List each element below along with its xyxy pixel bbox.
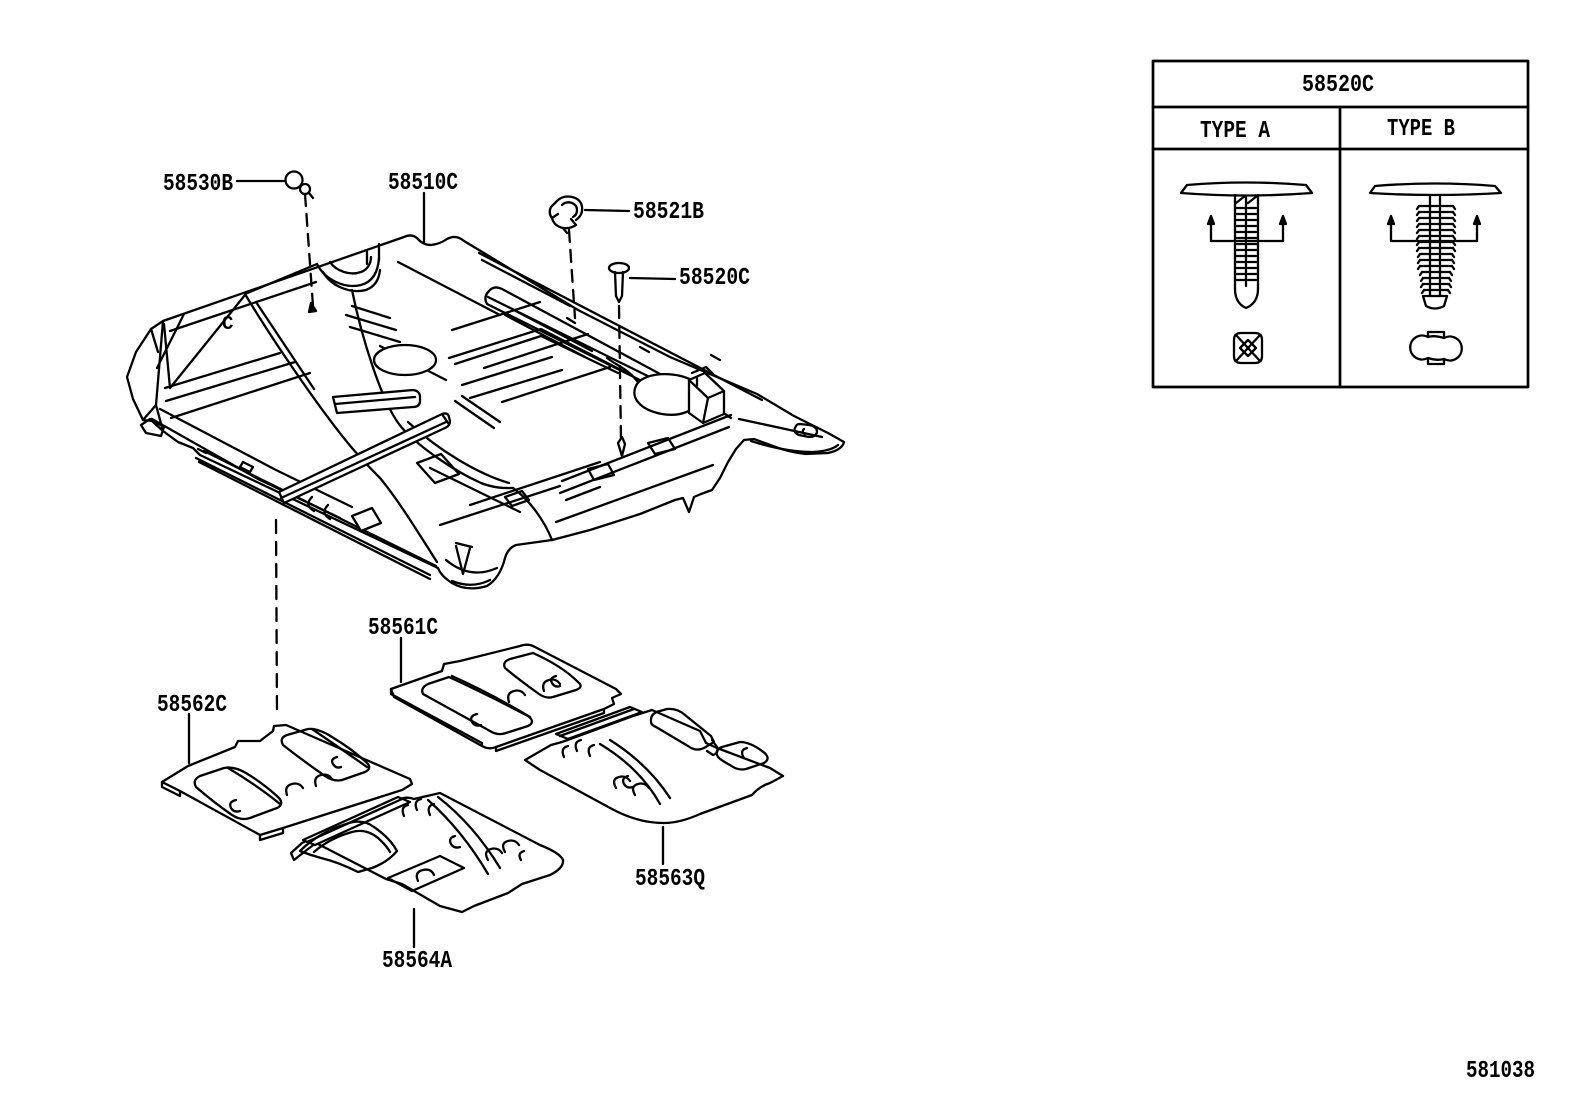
svg-text:TYPE A: TYPE A — [1200, 118, 1270, 145]
svg-text:58563Q: 58563Q — [635, 866, 705, 893]
svg-text:58561C: 58561C — [368, 615, 438, 642]
svg-text:58562C: 58562C — [157, 692, 227, 719]
svg-text:C: C — [222, 313, 233, 335]
svg-text:581038: 581038 — [1466, 1058, 1535, 1085]
svg-text:58521B: 58521B — [633, 199, 704, 226]
svg-text:58520C: 58520C — [679, 265, 750, 292]
svg-text:58520C: 58520C — [1302, 72, 1374, 99]
svg-text:58564A: 58564A — [382, 948, 452, 975]
svg-text:TYPE B: TYPE B — [1387, 116, 1455, 143]
svg-text:58530B: 58530B — [163, 171, 233, 198]
